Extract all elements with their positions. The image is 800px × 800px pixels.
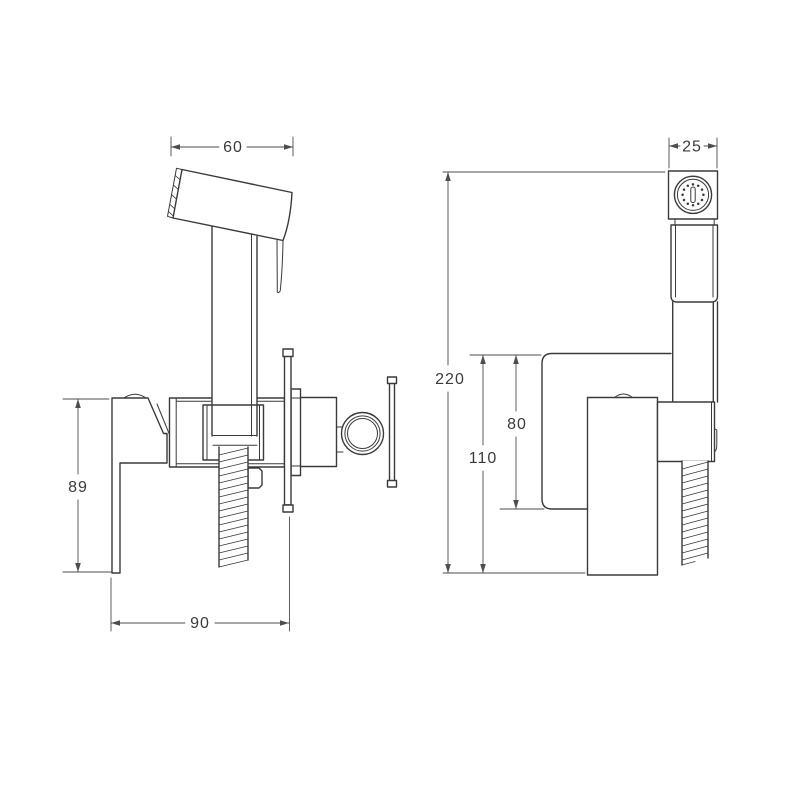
dim-label-110: 110 [469, 450, 498, 467]
dim-front-lever-height: 89 [63, 399, 114, 572]
shower-hose-side [682, 461, 708, 565]
wall-plate-rod-1 [283, 349, 293, 512]
sprayer-handle-side [671, 219, 718, 302]
dim-front-depth: 90 [111, 517, 290, 632]
head-nozzle-tail [277, 239, 283, 292]
dim-label-60: 60 [223, 139, 243, 156]
lever-handle [112, 394, 171, 573]
dim-side-lower-height: 110 [469, 355, 541, 573]
dim-label-80: 80 [507, 416, 527, 433]
dim-side-plate-height: 80 [500, 355, 544, 509]
dim-front-head-width: 60 [171, 137, 293, 156]
hose-nut [248, 468, 262, 488]
wall-collar [291, 389, 301, 476]
hose-connector-side [658, 402, 717, 462]
technical-drawing-bidet-sprayer: 60 89 90 [0, 0, 800, 800]
dim-side-head-width: 25 [669, 138, 717, 168]
side-view: 25 220 110 80 [435, 138, 717, 575]
sprayer-head-side [669, 171, 718, 219]
body-right-section [300, 398, 337, 467]
dim-label-90: 90 [190, 615, 210, 632]
front-view: 60 89 90 [63, 137, 397, 632]
mixer-body-side [588, 394, 658, 575]
dim-label-89: 89 [68, 479, 88, 496]
handle-neck [675, 219, 714, 225]
sprayer-column-side [673, 302, 718, 402]
dim-label-220: 220 [435, 371, 465, 388]
wall-plate-rod-2 [388, 377, 397, 487]
hose-connector-circle [342, 413, 384, 455]
shower-hose-front [219, 447, 248, 567]
dim-label-25: 25 [682, 139, 702, 156]
